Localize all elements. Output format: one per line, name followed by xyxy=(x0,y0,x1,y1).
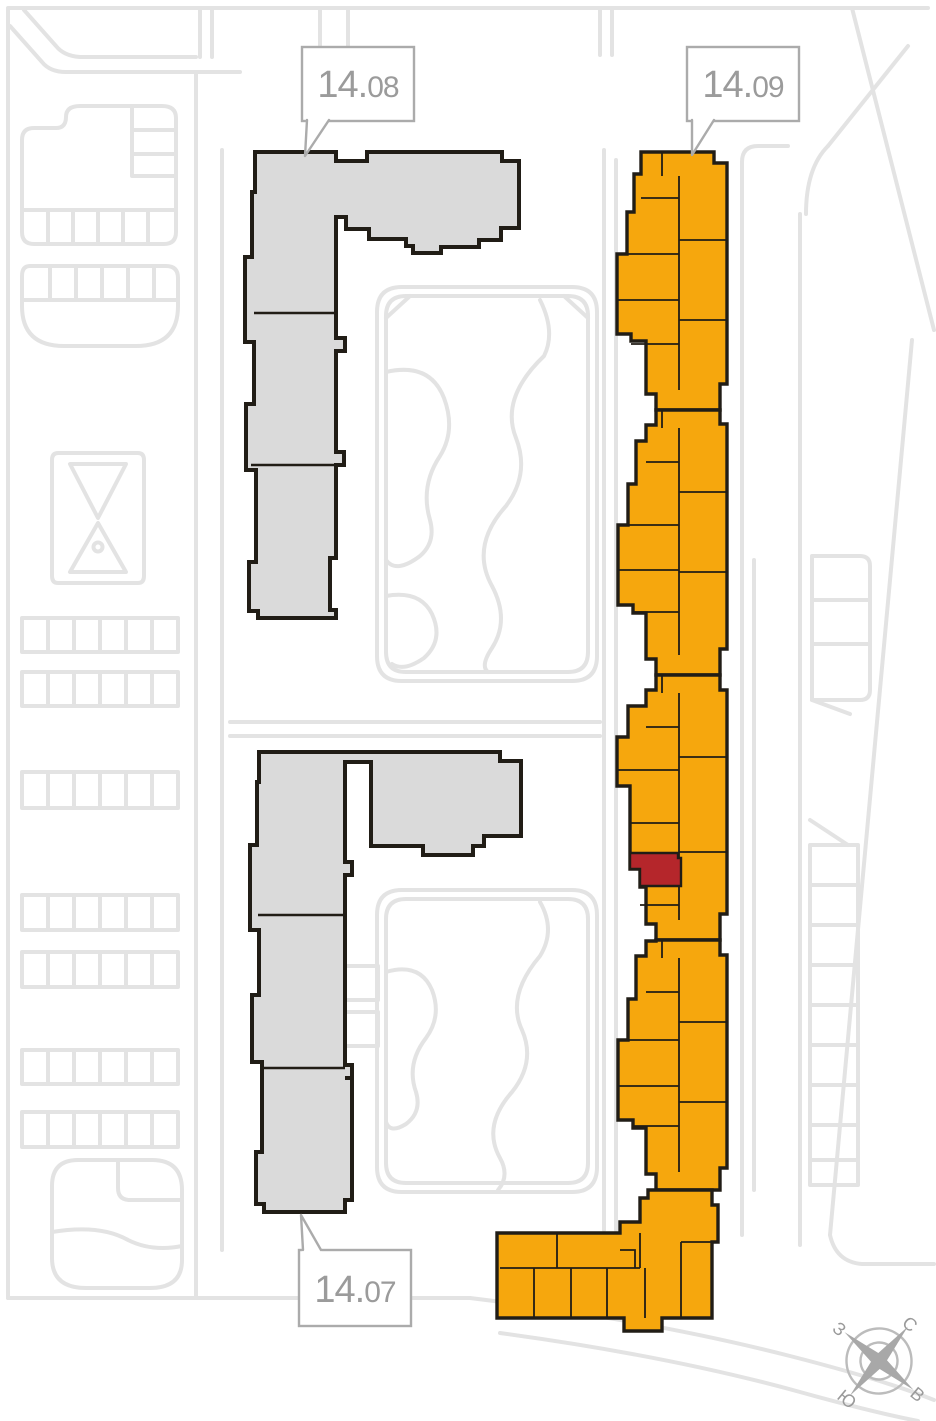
building-label-14-08[interactable]: 14.08 xyxy=(302,47,414,157)
site-plan-map: 14.08 14.09 14.07 С Ю З В xyxy=(0,0,936,1421)
building-14-09-section-1[interactable] xyxy=(617,152,727,410)
building-14-09-section-3[interactable] xyxy=(617,675,727,940)
building-label-14-09[interactable]: 14.09 xyxy=(687,47,799,156)
building-14-09[interactable] xyxy=(497,152,727,1331)
compass-needle-ew xyxy=(840,1327,917,1395)
building-14-08-outline[interactable] xyxy=(245,152,519,618)
building-14-09-section-4[interactable] xyxy=(618,940,727,1190)
site-plan: 14.08 14.09 14.07 С Ю З В xyxy=(0,0,936,1421)
compass-rose: С Ю З В xyxy=(797,1280,936,1421)
building-14-08[interactable] xyxy=(245,152,519,618)
building-14-09-section-2[interactable] xyxy=(618,410,727,675)
compass-west-label: З xyxy=(829,1318,850,1340)
label-text: 14.08 xyxy=(317,64,399,106)
label-text: 14.09 xyxy=(702,64,784,106)
label-text: 14.07 xyxy=(314,1269,396,1311)
building-label-14-07[interactable]: 14.07 xyxy=(299,1214,411,1326)
selected-unit[interactable] xyxy=(630,853,681,886)
